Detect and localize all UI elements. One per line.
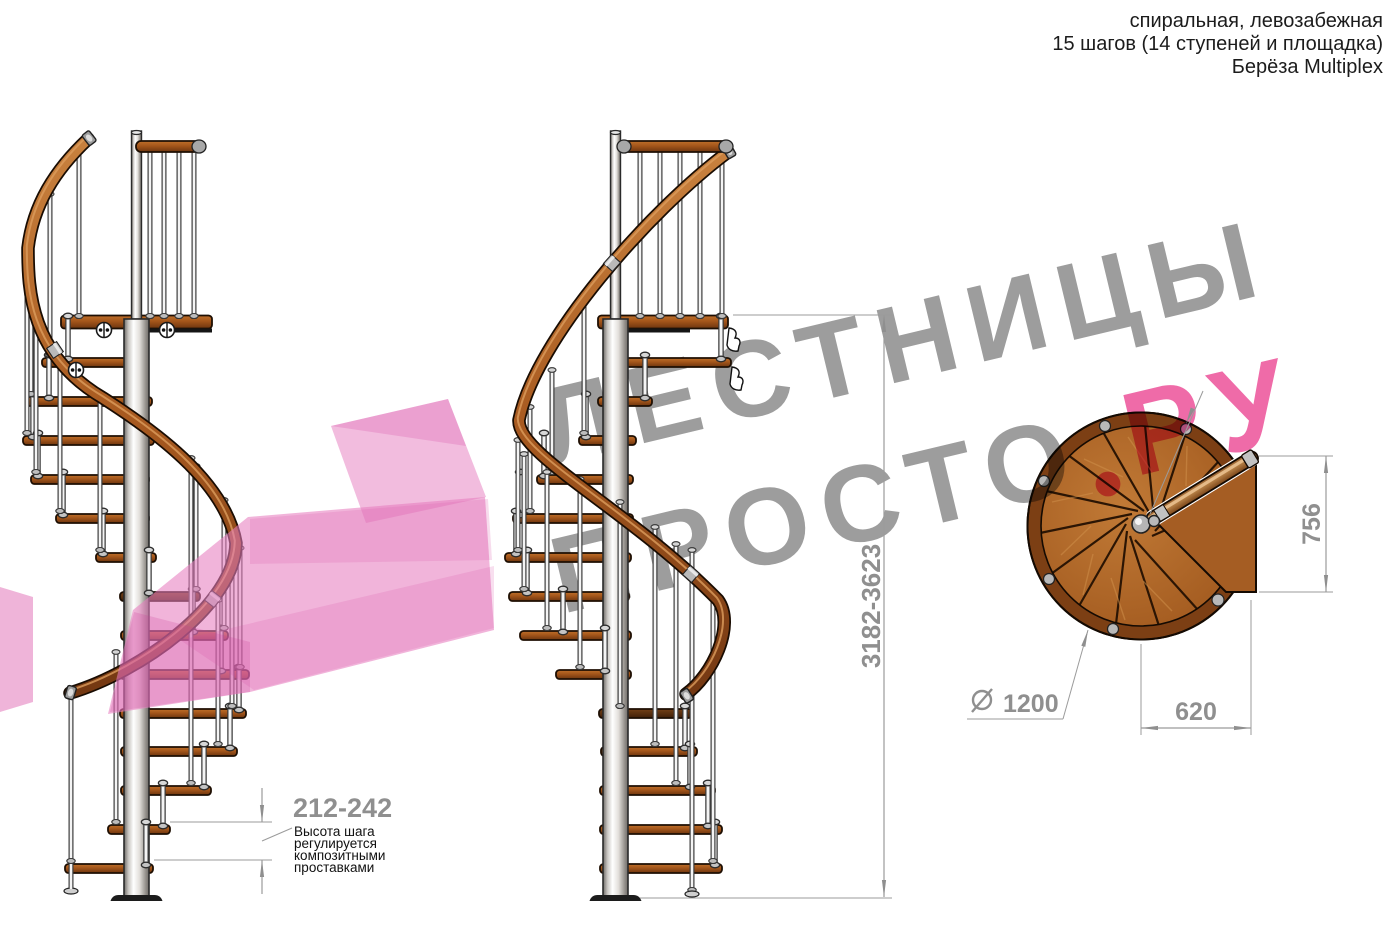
- svg-text:756: 756: [1298, 503, 1326, 545]
- svg-text:проставками: проставками: [294, 860, 374, 875]
- svg-text:Берёза Multiplex: Берёза Multiplex: [1232, 56, 1383, 78]
- svg-text:620: 620: [1175, 698, 1217, 726]
- svg-text:212-242: 212-242: [293, 793, 392, 823]
- svg-text:спиральная, левозабежная: спиральная, левозабежная: [1130, 10, 1383, 32]
- svg-text:1200: 1200: [1003, 690, 1059, 718]
- svg-text:15 шагов (14 ступеней и площад: 15 шагов (14 ступеней и площадка): [1052, 33, 1383, 55]
- svg-text:3182-3623: 3182-3623: [856, 544, 886, 668]
